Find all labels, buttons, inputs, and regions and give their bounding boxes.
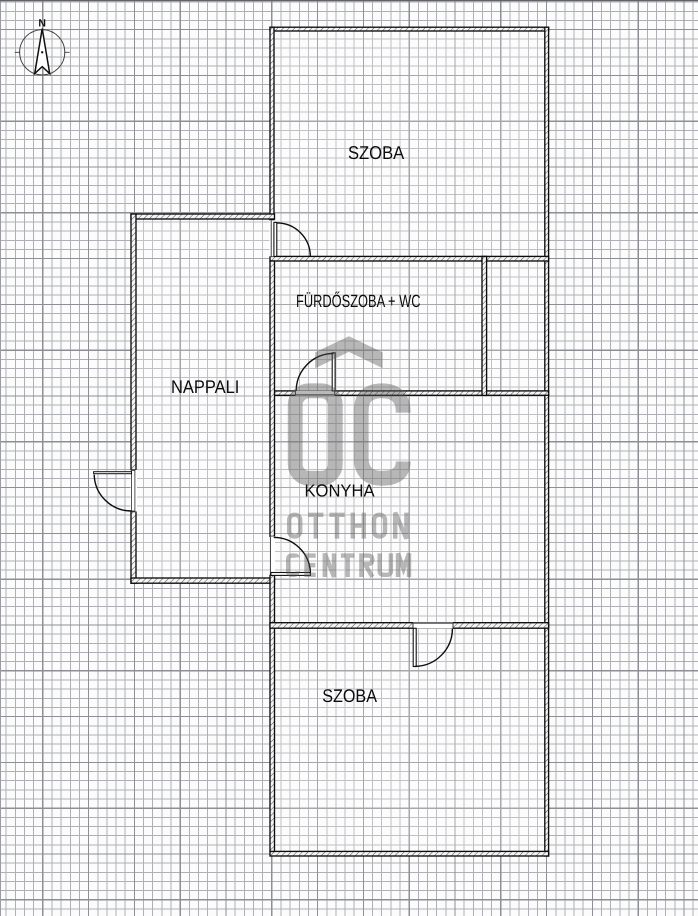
svg-text:SZOBA: SZOBA (322, 685, 378, 706)
svg-text:SZOBA: SZOBA (348, 142, 405, 163)
svg-text:KONYHA: KONYHA (305, 481, 375, 501)
svg-text:N: N (38, 18, 46, 30)
svg-text:FÜRDŐSZOBA + WC: FÜRDŐSZOBA + WC (296, 291, 421, 311)
svg-text:NAPPALI: NAPPALI (171, 376, 239, 397)
